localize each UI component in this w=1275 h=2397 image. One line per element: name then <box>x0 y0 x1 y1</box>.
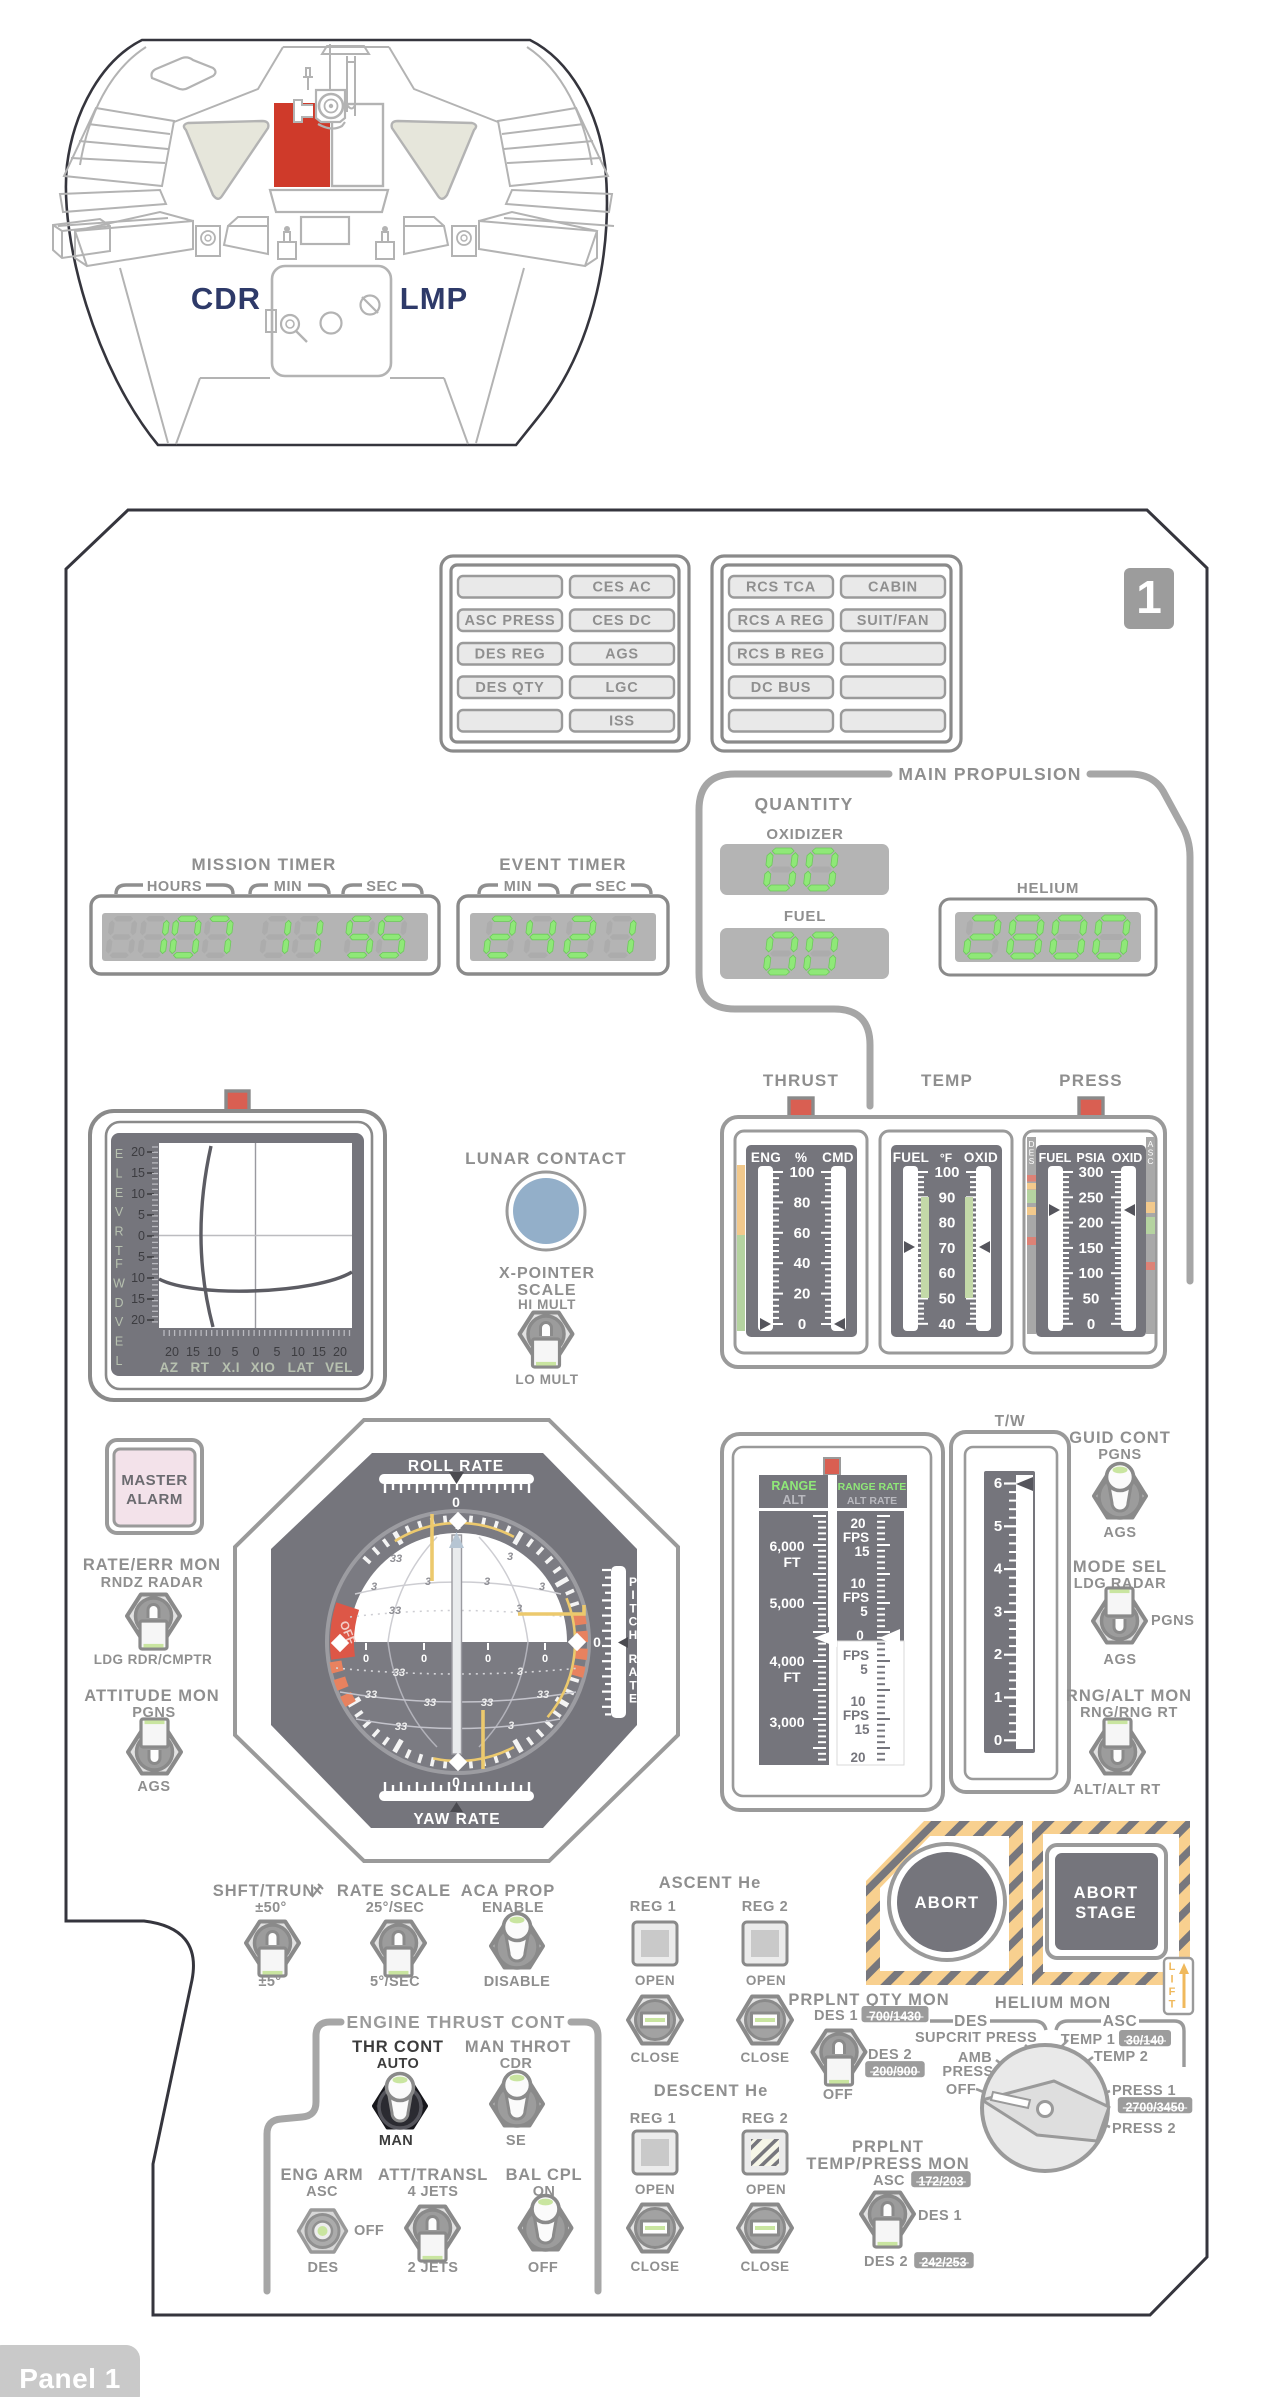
svg-text:15: 15 <box>854 1722 870 1737</box>
svg-text:ASC PRESS: ASC PRESS <box>465 613 556 629</box>
svg-text:5: 5 <box>994 1518 1002 1535</box>
svg-text:5: 5 <box>232 1345 239 1359</box>
svg-text:DISABLE: DISABLE <box>484 1974 550 1990</box>
svg-text:80: 80 <box>939 1215 956 1232</box>
svg-text:FPS: FPS <box>843 1708 869 1723</box>
svg-text:CMD: CMD <box>822 1150 854 1165</box>
svg-text:PRPLNT: PRPLNT <box>852 2138 924 2156</box>
svg-text:0: 0 <box>1087 1316 1095 1333</box>
svg-text:ATT/TRANSL: ATT/TRANSL <box>378 2166 488 2184</box>
svg-text:HOURS: HOURS <box>147 879 202 895</box>
svg-text:RCS B REG: RCS B REG <box>737 647 825 663</box>
svg-text:0: 0 <box>452 1494 460 1510</box>
svg-text:50: 50 <box>1083 1291 1100 1308</box>
svg-text:FPS: FPS <box>843 1648 869 1663</box>
svg-text:700/1430: 700/1430 <box>869 2010 921 2024</box>
svg-text:X-POINTER: X-POINTER <box>499 1265 595 1282</box>
svg-text:RATE SCALE: RATE SCALE <box>337 1882 451 1900</box>
svg-text:33: 33 <box>424 1697 436 1709</box>
svg-text:D: D <box>114 1296 123 1310</box>
svg-text:5: 5 <box>138 1208 145 1222</box>
svg-text:T: T <box>1169 1999 1176 2011</box>
svg-text:DESCENT He: DESCENT He <box>654 2082 769 2100</box>
svg-text:20: 20 <box>165 1345 179 1359</box>
svg-text:33: 33 <box>395 1721 407 1733</box>
svg-text:1: 1 <box>1136 571 1162 623</box>
svg-text:ASCENT He: ASCENT He <box>659 1874 762 1892</box>
svg-text:4 JETS: 4 JETS <box>408 2184 459 2200</box>
svg-text:ENGINE THRUST CONT: ENGINE THRUST CONT <box>347 2012 566 2032</box>
svg-text:ABORT: ABORT <box>1074 1884 1139 1902</box>
svg-text:40: 40 <box>939 1316 956 1333</box>
svg-text:SUIT/FAN: SUIT/FAN <box>857 613 929 629</box>
svg-text:5: 5 <box>274 1345 281 1359</box>
svg-text:0: 0 <box>138 1229 145 1243</box>
svg-text:33: 33 <box>389 1605 401 1617</box>
svg-text:AZ: AZ <box>160 1360 179 1375</box>
svg-text:MIN: MIN <box>274 879 302 895</box>
svg-text:L: L <box>1169 1961 1176 1973</box>
svg-text:10: 10 <box>131 1187 145 1201</box>
svg-text:HELIUM: HELIUM <box>1017 880 1079 897</box>
svg-text:BAL CPL: BAL CPL <box>506 2166 583 2184</box>
svg-text:40: 40 <box>794 1255 811 1272</box>
svg-text:TEMP/PRESS MON: TEMP/PRESS MON <box>806 2155 969 2173</box>
svg-text:DES 2: DES 2 <box>868 2047 912 2063</box>
svg-text:REG 1: REG 1 <box>630 2111 677 2127</box>
svg-text:1: 1 <box>994 1689 1002 1706</box>
svg-text:0: 0 <box>253 1345 260 1359</box>
svg-text:XIO: XIO <box>251 1360 276 1375</box>
svg-text:L: L <box>116 1166 123 1180</box>
svg-text:±5°: ±5° <box>258 1974 281 1990</box>
svg-text:2 JETS: 2 JETS <box>408 2260 459 2276</box>
svg-text:OXID: OXID <box>964 1150 998 1165</box>
svg-text:T: T <box>629 1601 637 1615</box>
svg-text:15: 15 <box>131 1166 145 1180</box>
svg-text:FUEL: FUEL <box>1039 1151 1072 1165</box>
svg-text:33: 33 <box>481 1697 493 1709</box>
svg-text:DES: DES <box>307 2260 338 2276</box>
svg-text:PRESS: PRESS <box>942 2064 993 2080</box>
svg-text:OPEN: OPEN <box>635 2182 675 2197</box>
svg-text:ASC: ASC <box>1103 2013 1138 2030</box>
svg-text:VEL: VEL <box>325 1360 353 1375</box>
svg-text:100: 100 <box>934 1164 959 1181</box>
svg-text:MIN: MIN <box>504 879 532 895</box>
svg-text:ATTITUDE MON: ATTITUDE MON <box>84 1687 219 1705</box>
svg-text:FUEL: FUEL <box>784 908 826 925</box>
svg-text:REG 1: REG 1 <box>630 1899 677 1915</box>
svg-text:RATE/ERR MON: RATE/ERR MON <box>83 1556 221 1574</box>
svg-text:YAW RATE: YAW RATE <box>413 1811 500 1828</box>
svg-text:3: 3 <box>484 1576 490 1588</box>
svg-text:AGS: AGS <box>1103 1652 1136 1668</box>
svg-text:THRUST: THRUST <box>763 1071 839 1090</box>
svg-text:OPEN: OPEN <box>746 1973 786 1988</box>
svg-text:3: 3 <box>371 1581 377 1593</box>
svg-text:0: 0 <box>856 1628 864 1643</box>
svg-text:TEMP 1: TEMP 1 <box>1061 2032 1116 2048</box>
svg-text:ABORT: ABORT <box>915 1894 980 1912</box>
svg-text:15: 15 <box>131 1292 145 1306</box>
svg-text:RCS TCA: RCS TCA <box>746 580 816 596</box>
svg-text:RCS A REG: RCS A REG <box>738 613 825 629</box>
svg-text:80: 80 <box>794 1194 811 1211</box>
svg-text:RT: RT <box>191 1360 210 1375</box>
svg-text:SUPCRIT PRESS: SUPCRIT PRESS <box>915 2030 1037 2046</box>
svg-text:LMP: LMP <box>400 281 468 316</box>
svg-text:15: 15 <box>312 1345 326 1359</box>
svg-text:ENG: ENG <box>751 1150 781 1165</box>
svg-text:Panel 1: Panel 1 <box>19 2363 121 2394</box>
svg-text:5: 5 <box>138 1250 145 1264</box>
svg-text:RANGE RATE: RANGE RATE <box>838 1481 907 1493</box>
svg-text:150: 150 <box>1078 1240 1103 1257</box>
svg-text:STAGE: STAGE <box>1075 1904 1137 1922</box>
svg-text:0: 0 <box>421 1653 427 1665</box>
svg-text:L: L <box>116 1354 123 1368</box>
svg-text:3: 3 <box>539 1581 545 1593</box>
svg-text:AGS: AGS <box>137 1779 170 1795</box>
svg-text:C: C <box>1147 1156 1153 1166</box>
svg-text:X.I: X.I <box>222 1360 240 1375</box>
svg-text:QUANTITY: QUANTITY <box>754 794 853 814</box>
svg-text:242/253: 242/253 <box>921 2256 966 2270</box>
svg-text:MASTER: MASTER <box>121 1472 187 1489</box>
svg-text:AUTO: AUTO <box>377 2056 419 2072</box>
svg-text:10: 10 <box>207 1345 221 1359</box>
svg-text:4,000: 4,000 <box>769 1653 804 1669</box>
svg-text:ALT/ALT RT: ALT/ALT RT <box>1073 1782 1161 1798</box>
svg-text:3: 3 <box>517 1666 523 1678</box>
svg-text:33: 33 <box>365 1689 377 1701</box>
svg-text:HELIUM MON: HELIUM MON <box>995 1994 1111 2012</box>
svg-text:C: C <box>629 1615 638 1629</box>
svg-text:SEC: SEC <box>595 879 627 895</box>
svg-text:OXIDIZER: OXIDIZER <box>766 826 843 843</box>
svg-text:E: E <box>115 1335 123 1349</box>
svg-text:W: W <box>113 1276 125 1290</box>
svg-text:ALT: ALT <box>782 1493 806 1507</box>
svg-text:100: 100 <box>789 1164 814 1181</box>
svg-text:SE: SE <box>506 2133 526 2149</box>
svg-text:10: 10 <box>850 1694 865 1709</box>
svg-text:RANGE: RANGE <box>771 1479 816 1493</box>
svg-text:0: 0 <box>363 1653 369 1665</box>
svg-text:HI MULT: HI MULT <box>518 1297 576 1312</box>
svg-text:MISSION TIMER: MISSION TIMER <box>192 855 337 874</box>
svg-text:H: H <box>629 1628 638 1642</box>
svg-text:ALT RATE: ALT RATE <box>847 1495 897 1507</box>
svg-text:T: T <box>115 1244 123 1258</box>
svg-text:OXID: OXID <box>1112 1151 1143 1165</box>
svg-text:CDR: CDR <box>500 2056 533 2072</box>
svg-text:33: 33 <box>537 1689 549 1701</box>
svg-text:GUID CONT: GUID CONT <box>1069 1429 1171 1447</box>
svg-text:ENG ARM: ENG ARM <box>281 2166 364 2184</box>
svg-text:15: 15 <box>854 1544 870 1559</box>
svg-text:PRESS 2: PRESS 2 <box>1112 2121 1176 2137</box>
svg-text:60: 60 <box>794 1225 811 1242</box>
svg-text:MAN: MAN <box>379 2133 413 2149</box>
svg-text:E: E <box>115 1147 123 1161</box>
svg-text:3: 3 <box>507 1551 513 1563</box>
svg-text:ASC: ASC <box>306 2184 338 2200</box>
svg-text:33: 33 <box>393 1667 405 1679</box>
svg-text:20: 20 <box>131 1313 145 1327</box>
svg-text:PRESS: PRESS <box>1059 1071 1123 1090</box>
svg-text:DES QTY: DES QTY <box>475 680 544 696</box>
svg-text:2700/3450: 2700/3450 <box>1125 2101 1184 2115</box>
svg-text:TEMP 2: TEMP 2 <box>1094 2049 1149 2065</box>
svg-text:OPEN: OPEN <box>635 1973 675 1988</box>
svg-text:250: 250 <box>1078 1189 1103 1206</box>
svg-text:3: 3 <box>425 1576 431 1588</box>
svg-text:REG 2: REG 2 <box>742 1899 789 1915</box>
svg-text:EVENT TIMER: EVENT TIMER <box>499 855 627 874</box>
svg-text:CLOSE: CLOSE <box>740 2259 789 2274</box>
svg-text:OFF: OFF <box>354 2223 384 2239</box>
svg-text:10: 10 <box>850 1576 865 1591</box>
svg-text:RNDZ RADAR: RNDZ RADAR <box>101 1575 204 1591</box>
svg-text:DES 2: DES 2 <box>864 2254 908 2270</box>
svg-text:300: 300 <box>1078 1164 1103 1181</box>
svg-text:6: 6 <box>994 1475 1002 1492</box>
svg-text:2: 2 <box>994 1646 1002 1663</box>
svg-text:A: A <box>629 1665 638 1679</box>
svg-text:FPS: FPS <box>843 1590 869 1605</box>
svg-text:DES 1: DES 1 <box>918 2208 962 2224</box>
svg-text:FT: FT <box>783 1669 801 1685</box>
svg-text:CLOSE: CLOSE <box>630 2259 679 2274</box>
svg-text:CDR: CDR <box>191 281 261 316</box>
svg-text:F: F <box>115 1257 123 1271</box>
svg-text:MODE SEL: MODE SEL <box>1073 1558 1167 1576</box>
svg-text:20: 20 <box>850 1750 865 1765</box>
svg-text:V: V <box>115 1315 124 1329</box>
svg-text:200/900: 200/900 <box>872 2065 917 2079</box>
svg-text:LGC: LGC <box>605 680 638 696</box>
svg-text:3: 3 <box>508 1720 514 1732</box>
svg-text:P: P <box>629 1575 637 1589</box>
svg-text:ISS: ISS <box>609 714 635 730</box>
svg-text:4: 4 <box>994 1561 1003 1578</box>
svg-text:MAN THROT: MAN THROT <box>465 2038 571 2056</box>
svg-text:3: 3 <box>994 1603 1002 1620</box>
svg-text:200: 200 <box>1078 1215 1103 1232</box>
svg-text:LAT: LAT <box>288 1360 315 1375</box>
svg-text:30/140: 30/140 <box>1126 2034 1164 2048</box>
svg-text:PGNS: PGNS <box>1098 1447 1142 1463</box>
svg-text:TEMP: TEMP <box>921 1071 973 1090</box>
svg-text:5: 5 <box>860 1662 868 1677</box>
svg-text:E: E <box>629 1692 637 1706</box>
svg-text:DES 1: DES 1 <box>814 2008 858 2024</box>
svg-text:20: 20 <box>794 1286 811 1303</box>
svg-text:172/203: 172/203 <box>918 2175 963 2189</box>
svg-text:I: I <box>631 1588 634 1602</box>
svg-text:SHFT/TRUN: SHFT/TRUN <box>213 1882 316 1900</box>
svg-text:R: R <box>114 1225 123 1239</box>
svg-text:PRESS 1: PRESS 1 <box>1112 2083 1176 2099</box>
svg-text:OFF: OFF <box>946 2082 976 2098</box>
svg-text:5°/SEC: 5°/SEC <box>370 1974 420 1990</box>
svg-text:20: 20 <box>131 1145 145 1159</box>
svg-text:I: I <box>1170 1974 1173 1986</box>
svg-text:T/W: T/W <box>995 1413 1026 1430</box>
svg-text:15: 15 <box>186 1345 200 1359</box>
svg-text:25°/SEC: 25°/SEC <box>366 1900 425 1916</box>
svg-text:ASC: ASC <box>873 2173 905 2189</box>
svg-text:OFF: OFF <box>528 2260 558 2276</box>
svg-text:S: S <box>1029 1156 1035 1166</box>
svg-text:0: 0 <box>994 1732 1002 1749</box>
svg-text:LUNAR CONTACT: LUNAR CONTACT <box>465 1149 627 1168</box>
svg-text:20: 20 <box>850 1516 865 1531</box>
svg-text:R: R <box>629 1652 638 1666</box>
svg-text:LO MULT: LO MULT <box>515 1372 578 1387</box>
svg-text:50: 50 <box>939 1291 956 1308</box>
svg-text:33: 33 <box>390 1553 402 1565</box>
svg-text:DES REG: DES REG <box>475 647 546 663</box>
svg-text:F: F <box>1169 1986 1176 1998</box>
svg-text:70: 70 <box>939 1240 956 1257</box>
svg-text:90: 90 <box>939 1189 956 1206</box>
svg-text:RNG/ALT MON: RNG/ALT MON <box>1066 1687 1192 1705</box>
svg-text:AGS: AGS <box>1103 1525 1136 1541</box>
svg-text:ALARM: ALARM <box>126 1491 183 1508</box>
svg-text:CABIN: CABIN <box>868 580 918 596</box>
svg-text:60: 60 <box>939 1265 956 1282</box>
svg-text:OFF: OFF <box>823 2087 853 2103</box>
svg-text:DC BUS: DC BUS <box>751 680 811 696</box>
svg-text:10: 10 <box>291 1345 305 1359</box>
svg-text:T: T <box>629 1678 637 1692</box>
svg-text:DES: DES <box>954 2013 988 2030</box>
svg-text:THR CONT: THR CONT <box>352 2038 444 2056</box>
svg-text:%: % <box>795 1150 807 1165</box>
svg-text:100: 100 <box>1078 1265 1103 1282</box>
svg-text:PSIA: PSIA <box>1076 1151 1105 1165</box>
svg-text:AGS: AGS <box>605 647 639 663</box>
svg-text:OPEN: OPEN <box>746 2182 786 2197</box>
svg-text:V: V <box>115 1205 124 1219</box>
svg-text:°F: °F <box>940 1151 952 1165</box>
svg-text:SEC: SEC <box>366 879 398 895</box>
svg-text:5,000: 5,000 <box>769 1595 804 1611</box>
svg-text:6,000: 6,000 <box>769 1538 804 1554</box>
svg-text:0: 0 <box>593 1634 601 1650</box>
svg-text:REG 2: REG 2 <box>742 2111 789 2127</box>
svg-text:3,000: 3,000 <box>769 1714 804 1730</box>
svg-text:±50°: ±50° <box>255 1900 287 1916</box>
svg-text:CES DC: CES DC <box>592 613 652 629</box>
svg-text:0: 0 <box>798 1316 806 1333</box>
svg-text:MAIN PROPULSION: MAIN PROPULSION <box>898 764 1081 784</box>
svg-text:LDG RDR/CMPTR: LDG RDR/CMPTR <box>94 1652 212 1667</box>
svg-text:PGNS: PGNS <box>1151 1613 1195 1629</box>
svg-text:CLOSE: CLOSE <box>740 2050 789 2065</box>
svg-text:10: 10 <box>131 1271 145 1285</box>
svg-text:E: E <box>115 1186 123 1200</box>
svg-text:FT: FT <box>783 1554 801 1570</box>
svg-text:5: 5 <box>860 1604 868 1619</box>
svg-text:20: 20 <box>333 1345 347 1359</box>
svg-text:FPS: FPS <box>843 1530 869 1545</box>
svg-text:ACA PROP: ACA PROP <box>461 1882 555 1900</box>
svg-text:CES AC: CES AC <box>592 580 651 596</box>
svg-text:CLOSE: CLOSE <box>630 2050 679 2065</box>
svg-text:FUEL: FUEL <box>893 1150 929 1165</box>
svg-text:0: 0 <box>542 1653 548 1665</box>
svg-text:0: 0 <box>485 1653 491 1665</box>
